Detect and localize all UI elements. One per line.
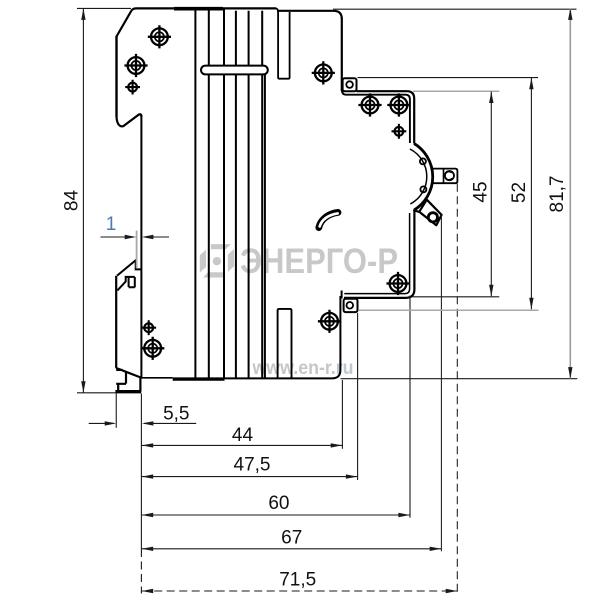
svg-text:81,7: 81,7 bbox=[547, 176, 568, 213]
svg-text:5,5: 5,5 bbox=[163, 403, 189, 424]
svg-text:1: 1 bbox=[106, 214, 117, 235]
svg-text:45: 45 bbox=[471, 181, 492, 202]
svg-text:71,5: 71,5 bbox=[279, 570, 316, 591]
svg-text:84: 84 bbox=[61, 190, 82, 212]
svg-text:52: 52 bbox=[509, 182, 530, 203]
svg-text:60: 60 bbox=[268, 493, 289, 514]
svg-text:47,5: 47,5 bbox=[234, 454, 271, 475]
svg-text:ЭНЕРГО-Р: ЭНЕРГО-Р bbox=[240, 242, 398, 281]
svg-text:67: 67 bbox=[281, 527, 302, 548]
svg-text:44: 44 bbox=[232, 425, 254, 446]
